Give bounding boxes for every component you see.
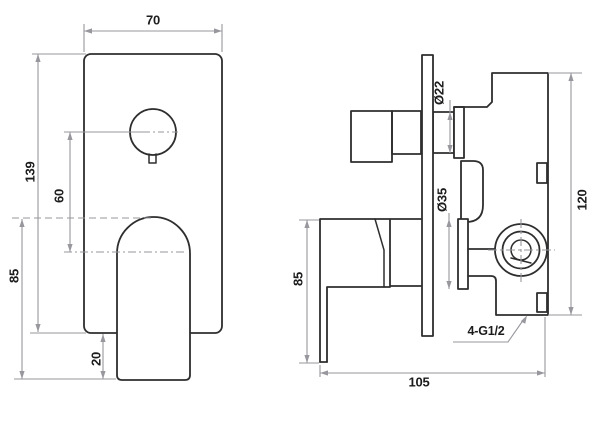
side-middle-boss bbox=[461, 161, 483, 222]
dim-label-plate-height: 139 bbox=[23, 161, 38, 182]
drawing-linework bbox=[0, 0, 600, 432]
side-lever-taper bbox=[375, 219, 384, 287]
technical-drawing-canvas: 70 139 60 85 20 Ø22 Ø35 120 85 105 4-G1/… bbox=[0, 0, 600, 432]
dim-label-knob-offset: 60 bbox=[52, 189, 67, 203]
dim-label-body-height: 120 bbox=[575, 189, 590, 210]
side-body-boss-top bbox=[537, 163, 547, 183]
side-lever-inner bbox=[327, 287, 390, 362]
dim-label-overall-depth: 105 bbox=[408, 375, 429, 390]
side-body-boss-bottom bbox=[537, 293, 547, 312]
dim-label-stub-diameter: Ø22 bbox=[432, 81, 447, 105]
front-lever-handle bbox=[117, 217, 190, 380]
front-view-linework bbox=[84, 54, 222, 380]
side-lever-hub bbox=[390, 220, 421, 286]
dim-label-hub-diameter: Ø35 bbox=[435, 188, 450, 212]
dim-label-thread-callout: 4-G1/2 bbox=[467, 324, 504, 338]
dim-label-handle-overhang: 20 bbox=[89, 352, 104, 366]
side-stub-flange bbox=[454, 107, 464, 158]
side-hub-flange bbox=[458, 219, 468, 289]
dim-label-handle-length-front: 85 bbox=[7, 269, 22, 283]
side-knob-inner bbox=[392, 111, 421, 154]
dim-label-plate-width: 70 bbox=[146, 13, 160, 28]
side-knob-outer bbox=[351, 111, 392, 162]
dim-label-handle-height-side: 85 bbox=[291, 272, 306, 286]
side-lever-outline bbox=[320, 219, 421, 362]
